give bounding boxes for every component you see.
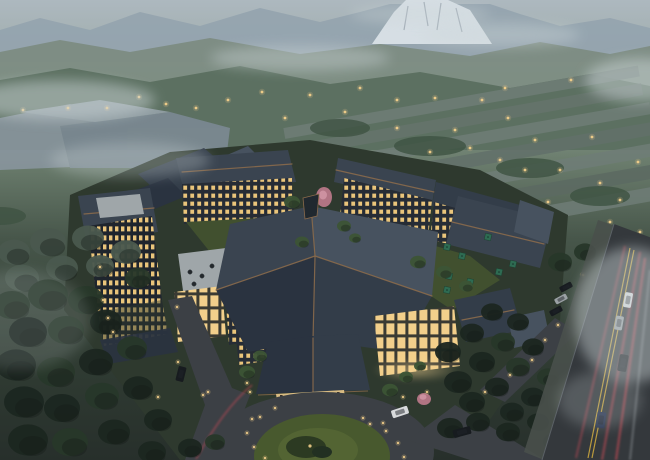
town-light (599, 182, 602, 185)
path-light (112, 331, 114, 333)
tree-shadow (81, 235, 103, 251)
path-light (207, 391, 209, 393)
tree-shadow (403, 376, 413, 383)
tree-shadow (414, 260, 425, 268)
tree-shadow (352, 237, 360, 243)
tree-shadow (62, 438, 87, 456)
town-light (639, 231, 642, 234)
tree-shadow (40, 238, 65, 256)
tree-shadow (466, 399, 484, 412)
blossom-highlight (420, 394, 427, 399)
tree-shadow (243, 370, 254, 378)
tree-shadow (88, 359, 112, 376)
path-light (426, 391, 428, 393)
town-light (637, 161, 640, 164)
path-light (246, 382, 248, 384)
umbrella-top (498, 271, 500, 273)
tree-shadow (440, 270, 451, 278)
town-light (454, 129, 457, 132)
path-light (484, 391, 486, 393)
tree-shadow (288, 200, 299, 208)
town-light (396, 99, 399, 102)
tree-shadow (463, 285, 473, 292)
north-gable-face (303, 194, 319, 219)
umbrella-top (446, 246, 448, 248)
tree-shadow (47, 368, 74, 387)
path-light (246, 432, 248, 434)
tree-shadow (498, 340, 515, 352)
tree-shadow (125, 345, 146, 360)
lawn-shrub-light (308, 444, 311, 447)
tree-shadow (257, 355, 267, 362)
tree-shadow (119, 249, 140, 264)
northwest-roof-deck (96, 194, 144, 218)
path-light (176, 306, 178, 308)
tree-shadow (99, 319, 121, 335)
town-light (261, 91, 264, 94)
architectural-rendering (0, 0, 650, 460)
town-light (609, 221, 612, 224)
path-light (557, 324, 559, 326)
path-light (544, 339, 546, 341)
lawn-shrub-dark (312, 446, 332, 458)
blossom-highlight (319, 191, 327, 200)
path-light (251, 418, 253, 420)
tree-shadow (107, 429, 129, 445)
tree-shadow (503, 430, 520, 442)
path-light (274, 407, 276, 409)
path-light (531, 359, 533, 361)
town-light (195, 107, 198, 110)
umbrella-top (512, 263, 514, 265)
tree-shadow (341, 225, 351, 232)
town-light (499, 159, 502, 162)
tree-shadow (492, 385, 509, 397)
tree-shadow (507, 410, 524, 422)
tree-shadow (185, 446, 202, 458)
tree-shadow (467, 331, 484, 343)
tree-shadow (19, 436, 47, 456)
umbrella-top (461, 255, 463, 257)
town-light (359, 87, 362, 90)
path-light (382, 422, 384, 424)
tree-shadow (94, 263, 114, 277)
tree-shadow (15, 398, 43, 418)
town-light (429, 151, 432, 154)
tree-shadow (442, 349, 460, 362)
town-light (591, 136, 594, 139)
town-light (619, 199, 622, 202)
path-light (259, 416, 261, 418)
path-light (369, 423, 371, 425)
path-light (177, 361, 179, 363)
tree-shadow (417, 365, 425, 371)
umbrella-top (487, 236, 489, 238)
tree-shadow (473, 420, 490, 432)
resort-scene (0, 0, 650, 460)
town-light (284, 117, 287, 120)
tree-shadow (54, 404, 79, 422)
town-light (434, 97, 437, 100)
tree-shadow (555, 260, 572, 272)
town-light (481, 99, 484, 102)
town-light (469, 147, 472, 150)
path-light (202, 394, 204, 396)
tree-shadow (513, 365, 530, 377)
tree-shadow (487, 310, 502, 321)
town-light (165, 103, 168, 106)
path-light (264, 457, 266, 459)
terrace-table (192, 282, 196, 286)
tree-shadow (211, 440, 225, 450)
path-light (403, 456, 405, 458)
town-light (524, 169, 527, 172)
tree-shadow (452, 379, 472, 393)
path-light (362, 417, 364, 419)
path-light (402, 396, 404, 398)
tree-shadow (299, 241, 309, 248)
tree-shadow (476, 359, 494, 372)
tree-shadow (7, 249, 29, 265)
tree-shadow (386, 388, 397, 396)
tree-shadow (513, 320, 528, 331)
town-light (507, 117, 510, 120)
town-light (559, 169, 562, 172)
town-light (504, 87, 507, 90)
umbrella-top (446, 289, 448, 291)
path-light (397, 442, 399, 444)
tree-shadow (152, 417, 172, 431)
town-light (396, 127, 399, 130)
path-light (509, 374, 511, 376)
path-light (157, 396, 159, 398)
terrace-table (200, 274, 204, 278)
tree-shadow (131, 385, 152, 400)
tree-shadow (132, 275, 150, 288)
town-light (344, 111, 347, 114)
town-light (547, 201, 550, 204)
path-light (102, 299, 104, 301)
tree-shadow (528, 345, 543, 356)
town-light (534, 139, 537, 142)
path-light (99, 266, 101, 268)
path-light (253, 446, 255, 448)
path-light (385, 430, 387, 432)
path-light (107, 317, 109, 319)
town-light (309, 94, 312, 97)
terrace-table (188, 270, 192, 274)
town-light (227, 99, 230, 102)
town-light (570, 79, 573, 82)
terrace-table (210, 264, 214, 268)
path-light (249, 391, 251, 393)
tree-shadow (94, 393, 118, 410)
